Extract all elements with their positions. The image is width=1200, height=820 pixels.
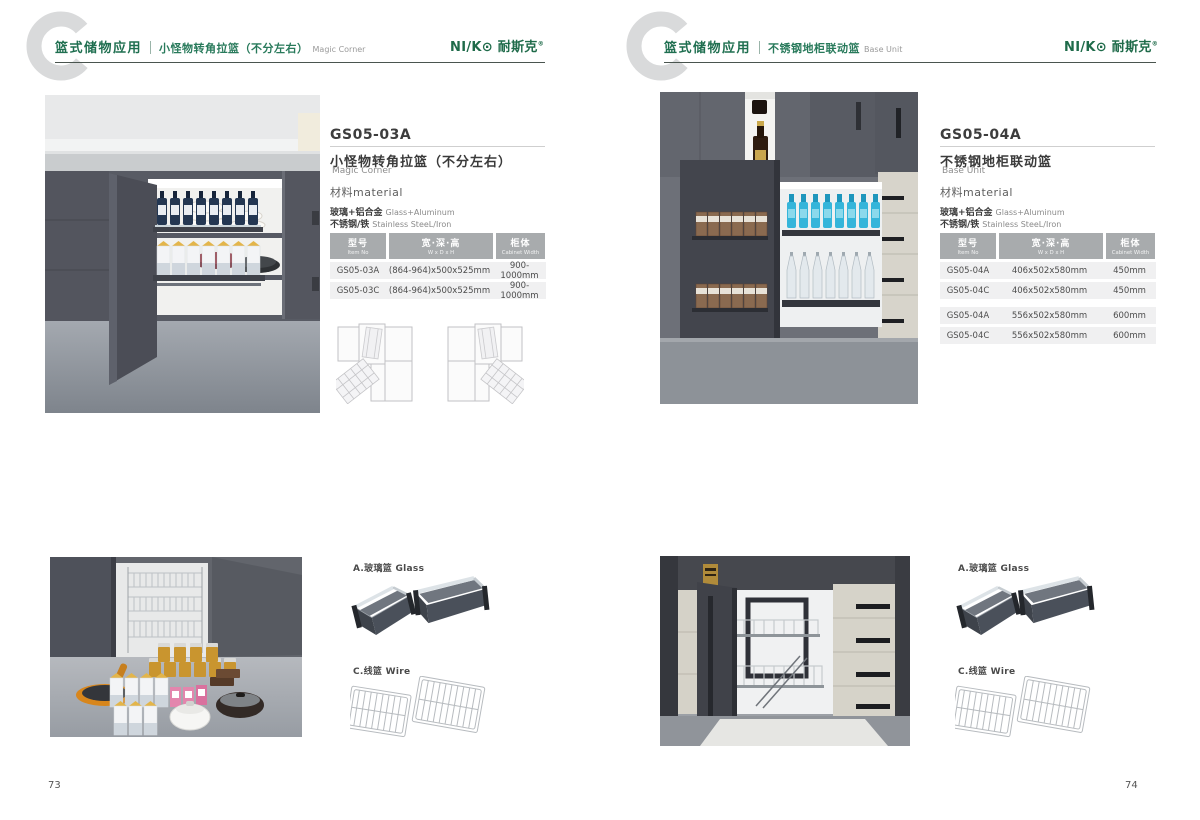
wire-basket-illustration [955, 676, 1103, 738]
header-rule [664, 62, 1156, 63]
cell-model: GS05-04C [940, 331, 996, 341]
material-en: Stainless SteeL/Iron [372, 220, 451, 229]
spec-header-size: 宽·深·高W x D x H [389, 233, 493, 259]
corner-layout-diagram-right [446, 320, 524, 404]
brand-logo: NI/K⊙ 耐斯克® [450, 36, 544, 55]
page-header: 篮式储物应用不锈钢地柜联动篮Base Unit [664, 37, 902, 56]
table-row: GS05-04A406x502x580mm450mm [940, 262, 1156, 279]
brand-reg-mark: ® [538, 41, 544, 48]
material-cn: 不锈钢/铁 [940, 220, 979, 230]
header-title-en: Base Unit [864, 45, 902, 54]
model-underline [330, 146, 545, 147]
spec-header-cabinet: 柜体Cabinet Width [496, 233, 545, 259]
header-title-en: Magic Corner [313, 45, 366, 54]
brand-logo-cn: 耐斯克 [498, 40, 538, 55]
page-header: 篮式储物应用小怪物转角拉篮（不分左右）Magic Corner [55, 37, 365, 56]
cell-cabinet: 600mm [1103, 331, 1156, 341]
cell-size: 406x502x580mm [996, 286, 1103, 296]
cell-cabinet: 900-1000mm [493, 281, 546, 301]
product-name-en: Base Unit [942, 166, 985, 176]
photo-base-unit-cabinet [660, 92, 918, 404]
cell-size: (864-964)x500x525mm [386, 286, 493, 296]
product-name-en: Magic Corner [332, 166, 392, 176]
cell-model: GS05-03C [330, 286, 386, 296]
header-divider-line [759, 41, 760, 54]
material-en: Stainless SteeL/Iron [982, 220, 1061, 229]
table-row: GS05-03A(864-964)x500x525mm900-1000mm [330, 262, 546, 279]
cell-model: GS05-04A [940, 266, 996, 276]
model-number: GS05-03A [330, 127, 411, 143]
material-line: 不锈钢/铁Stainless SteeL/Iron [330, 212, 451, 231]
material-heading: 材料material [940, 184, 1013, 200]
glass-basket-illustration [955, 571, 1097, 649]
brand-logo-cn: 耐斯克 [1112, 40, 1152, 55]
header-rule [55, 62, 545, 63]
glass-basket-illustration [350, 571, 492, 649]
page-number: 74 [1125, 780, 1138, 791]
brand-logo-latin: NI/K⊙ [450, 40, 493, 55]
brand-logo: NI/K⊙ 耐斯克® [1064, 36, 1158, 55]
header-title-cn: 不锈钢地柜联动篮 [768, 42, 860, 55]
table-row: GS05-04C406x502x580mm450mm [940, 282, 1156, 299]
material-cn: 不锈钢/铁 [330, 220, 369, 230]
spec-header-size: 宽·深·高W x D x H [999, 233, 1103, 259]
brand-logo-latin: NI/K⊙ [1064, 40, 1107, 55]
cell-model: GS05-04A [940, 311, 996, 321]
photo-wire-corner-scene [50, 557, 302, 737]
corner-layout-diagram-left [336, 320, 414, 404]
catalog-page-left: 篮式储物应用小怪物转角拉篮（不分左右）Magic Corner NI/K⊙ 耐斯… [0, 0, 600, 820]
photo-wire-base-cabinet [660, 556, 910, 746]
spec-header-model: 型号Item No [330, 233, 386, 259]
brand-reg-mark: ® [1152, 41, 1158, 48]
spec-table-header: 型号Item No 宽·深·高W x D x H 柜体Cabinet Width [330, 233, 546, 259]
cell-cabinet: 900-1000mm [493, 261, 546, 281]
cell-cabinet: 450mm [1103, 266, 1156, 276]
cell-model: GS05-03A [330, 266, 386, 276]
header-category: 篮式储物应用 [664, 41, 751, 56]
catalog-page-right: 篮式储物应用不锈钢地柜联动篮Base Unit NI/K⊙ 耐斯克® [600, 0, 1200, 820]
material-heading: 材料material [330, 184, 403, 200]
cell-size: 556x502x580mm [996, 311, 1103, 321]
header-divider-line [150, 41, 151, 54]
spec-table: 型号Item No 宽·深·高W x D x H 柜体Cabinet Width… [330, 233, 546, 299]
page-number: 73 [48, 780, 61, 791]
table-row: GS05-04C556x502x580mm600mm [940, 327, 1156, 344]
material-line: 不锈钢/铁Stainless SteeL/Iron [940, 212, 1061, 231]
cell-cabinet: 600mm [1103, 311, 1156, 321]
table-row: GS05-04A556x502x580mm600mm [940, 307, 1156, 324]
spec-header-model: 型号Item No [940, 233, 996, 259]
model-number: GS05-04A [940, 127, 1021, 143]
header-category: 篮式储物应用 [55, 41, 142, 56]
spec-table: 型号Item No 宽·深·高W x D x H 柜体Cabinet Width… [940, 233, 1156, 344]
model-underline [940, 146, 1155, 147]
cell-size: 556x502x580mm [996, 331, 1103, 341]
photo-magic-corner-cabinet [45, 95, 320, 413]
cell-size: 406x502x580mm [996, 266, 1103, 276]
table-row: GS05-03C(864-964)x500x525mm900-1000mm [330, 282, 546, 299]
cell-model: GS05-04C [940, 286, 996, 296]
wire-basket-illustration [350, 676, 498, 738]
cell-size: (864-964)x500x525mm [386, 266, 493, 276]
cell-cabinet: 450mm [1103, 286, 1156, 296]
spec-header-cabinet: 柜体Cabinet Width [1106, 233, 1155, 259]
spec-table-header: 型号Item No 宽·深·高W x D x H 柜体Cabinet Width [940, 233, 1156, 259]
header-title-cn: 小怪物转角拉篮（不分左右） [159, 42, 309, 55]
